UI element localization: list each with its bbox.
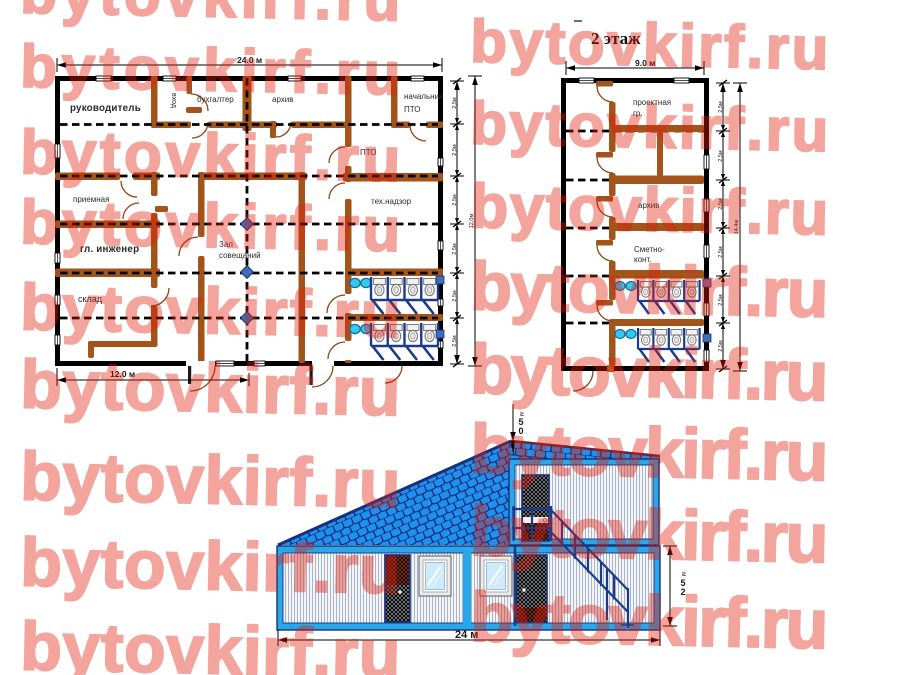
svg-text:2,5м: 2,5м (452, 97, 458, 109)
svg-text:bytovkirf.ru: bytovkirf.ru (20, 270, 401, 351)
svg-text:2,5м: 2,5м (452, 144, 458, 156)
svg-text:2,5м: 2,5м (452, 335, 458, 347)
svg-text:начальник: начальник (404, 92, 443, 101)
svg-text:bytovkirf.ru: bytovkirf.ru (20, 608, 402, 675)
svg-text:ПТО: ПТО (404, 105, 421, 114)
svg-text:bytovkirf.ru: bytovkirf.ru (20, 438, 402, 522)
svg-text:bytovkirf.ru: bytovkirf.ru (470, 90, 829, 164)
svg-text:bytovkirf.ru: bytovkirf.ru (470, 248, 830, 331)
svg-text:bytovkirf.ru: bytovkirf.ru (20, 188, 401, 265)
svg-text:руководитель: руководитель (70, 103, 141, 114)
svg-text:bytovkirf.ru: bytovkirf.ru (470, 172, 829, 248)
svg-text:bytovkirf.ru: bytovkirf.ru (470, 578, 830, 663)
svg-text:2,5м: 2,5м (452, 243, 458, 255)
svg-text:bytovkirf.ru: bytovkirf.ru (20, 33, 401, 108)
svg-text:bytovkirf.ru: bytovkirf.ru (20, 524, 402, 608)
svg-text:bytovkirf.ru: bytovkirf.ru (470, 410, 830, 495)
svg-text:2,5м: 2,5м (452, 290, 458, 302)
svg-text:bytovkirf.ru: bytovkirf.ru (20, 346, 402, 430)
svg-text:2,5м: 2,5м (452, 194, 458, 206)
svg-text:bytovkirf.ru: bytovkirf.ru (470, 8, 829, 82)
svg-text:bytovkirf.ru: bytovkirf.ru (20, 0, 401, 34)
svg-text:bytovkirf.ru: bytovkirf.ru (20, 118, 401, 195)
svg-text:bytovkirf.ru: bytovkirf.ru (470, 330, 830, 415)
svg-text:bytovkirf.ru: bytovkirf.ru (470, 492, 830, 577)
